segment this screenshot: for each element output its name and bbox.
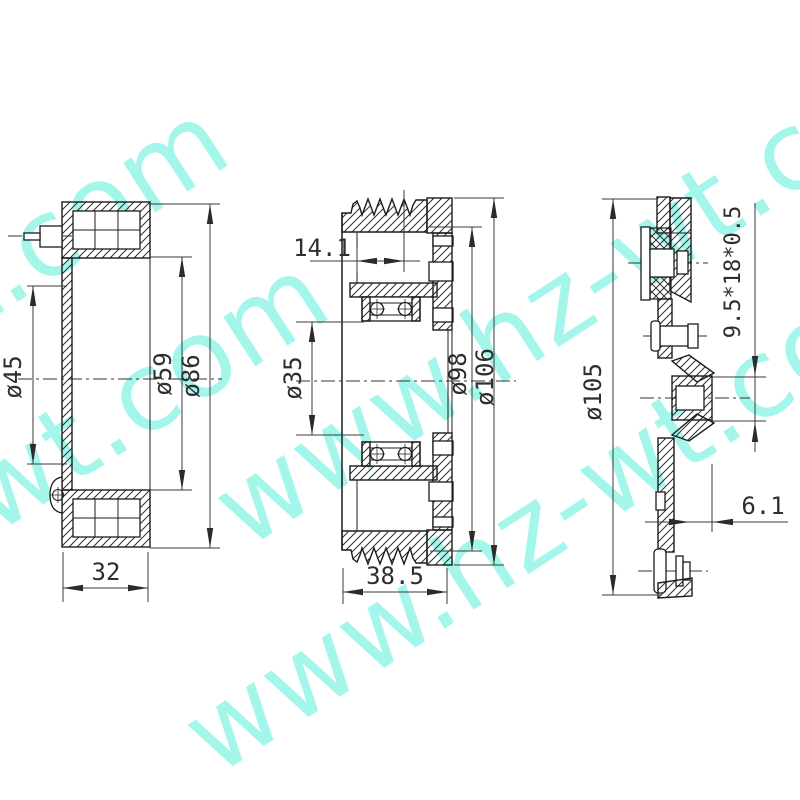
- dim-label-d106: ø106: [471, 348, 499, 406]
- dim-label-d35: ø35: [279, 356, 307, 399]
- pulley-flange-bottom: [427, 530, 452, 565]
- coil-connector-pin: [24, 233, 40, 240]
- drawing-svg: www.hz-wt.com www.hz-wt.com www.hz-wt.co…: [0, 0, 800, 800]
- dim-label-d59: ø59: [149, 352, 177, 395]
- dim-label-385: 38.5: [366, 562, 424, 590]
- dim-label-141: 14.1: [293, 234, 351, 262]
- belt-groove-top: [342, 199, 427, 232]
- technical-drawing-canvas: www.hz-wt.com www.hz-wt.com www.hz-wt.co…: [0, 0, 800, 800]
- dim-label-d45: ø45: [0, 355, 27, 398]
- dim-label-rivet-spec: 9.5*18*0.5: [721, 206, 746, 338]
- rivet-mid: [651, 321, 698, 351]
- coil-connector: [40, 226, 62, 247]
- coil-flange: [62, 258, 72, 490]
- dim-label-d98: ø98: [444, 352, 472, 395]
- hub-bore: [676, 386, 704, 410]
- bearing-top: [362, 297, 420, 321]
- bearing-housing-bottom: [350, 466, 437, 480]
- pulley-flange-top: [427, 198, 452, 233]
- dim-label-32: 32: [92, 558, 121, 586]
- dim-label-61: 6.1: [741, 492, 784, 520]
- dim-label-d105: ø105: [579, 363, 607, 421]
- dim-label-d86: ø86: [177, 354, 205, 397]
- bearing-bottom: [362, 442, 420, 466]
- bearing-housing-top: [350, 283, 437, 297]
